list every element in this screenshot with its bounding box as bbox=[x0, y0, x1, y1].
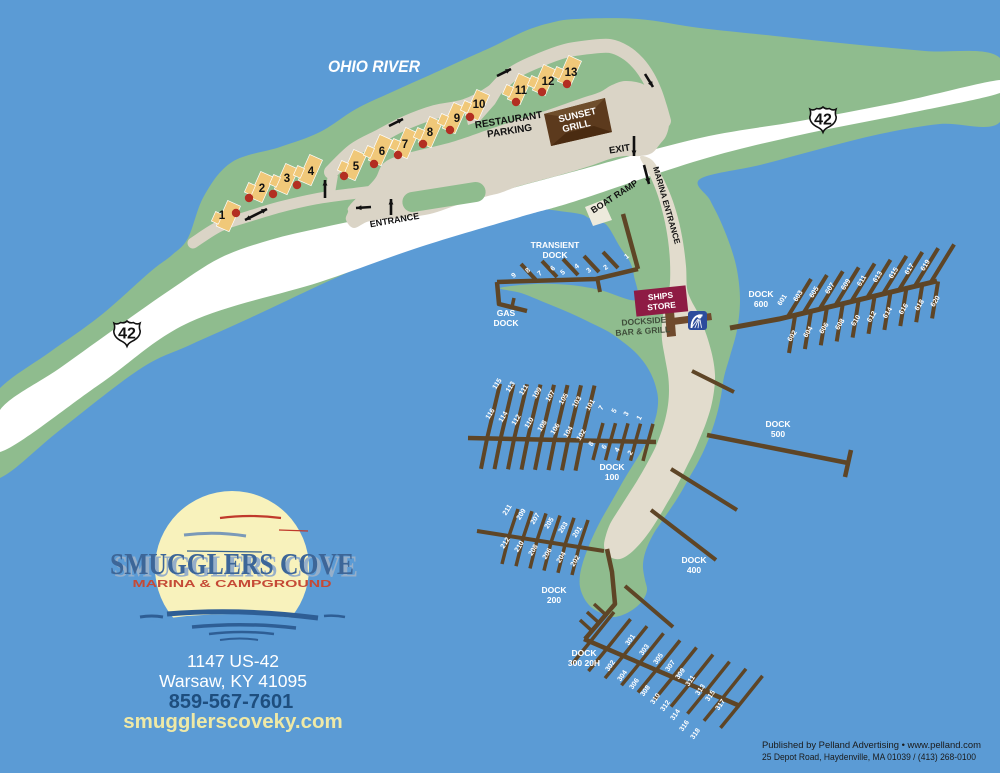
svg-text:9: 9 bbox=[454, 113, 460, 125]
svg-text:2: 2 bbox=[259, 183, 265, 195]
svg-text:1: 1 bbox=[219, 210, 226, 222]
svg-text:Published by Pelland Advertisi: Published by Pelland Advertising • www.p… bbox=[762, 740, 981, 751]
svg-text:13: 13 bbox=[565, 67, 578, 79]
svg-text:3: 3 bbox=[284, 173, 290, 185]
svg-text:GAS: GAS bbox=[497, 308, 516, 318]
svg-text:5: 5 bbox=[353, 161, 360, 173]
svg-text:DOCK: DOCK bbox=[748, 289, 774, 299]
svg-text:DOCK: DOCK bbox=[542, 250, 568, 260]
svg-text:7: 7 bbox=[402, 139, 408, 151]
svg-text:DOCK: DOCK bbox=[541, 585, 567, 595]
svg-text:12: 12 bbox=[542, 76, 555, 88]
svg-text:300 20H: 300 20H bbox=[568, 658, 600, 668]
svg-text:DOCK: DOCK bbox=[493, 318, 519, 328]
svg-text:400: 400 bbox=[687, 565, 701, 575]
svg-text:smugglerscoveky.com: smugglerscoveky.com bbox=[123, 710, 343, 733]
svg-text:SMUGGLERS COVE: SMUGGLERS COVE bbox=[110, 546, 354, 581]
svg-text:600: 600 bbox=[754, 299, 768, 309]
svg-text:1147 US-42: 1147 US-42 bbox=[187, 651, 279, 671]
svg-text:42: 42 bbox=[118, 326, 136, 343]
svg-text:OHIO RIVER: OHIO RIVER bbox=[328, 57, 421, 76]
svg-text:DOCK: DOCK bbox=[681, 555, 707, 565]
svg-text:TRANSIENT: TRANSIENT bbox=[531, 240, 580, 250]
svg-text:500: 500 bbox=[771, 429, 785, 439]
svg-text:11: 11 bbox=[515, 85, 528, 97]
svg-text:DOCK: DOCK bbox=[571, 648, 597, 658]
svg-text:8: 8 bbox=[427, 127, 434, 139]
svg-text:25 Depot Road, Haydenville, MA: 25 Depot Road, Haydenville, MA 01039 / (… bbox=[762, 752, 976, 763]
svg-text:6: 6 bbox=[379, 146, 385, 158]
svg-text:4: 4 bbox=[308, 166, 315, 178]
svg-text:10: 10 bbox=[473, 99, 486, 111]
svg-text:DOCK: DOCK bbox=[599, 462, 625, 472]
svg-text:200: 200 bbox=[547, 595, 561, 605]
svg-text:MARINA & CAMPGROUND: MARINA & CAMPGROUND bbox=[133, 578, 333, 590]
svg-text:DOCK: DOCK bbox=[765, 419, 791, 429]
svg-text:42: 42 bbox=[814, 112, 832, 129]
svg-text:100: 100 bbox=[605, 472, 619, 482]
svg-text:Warsaw, KY 41095: Warsaw, KY 41095 bbox=[159, 671, 307, 691]
